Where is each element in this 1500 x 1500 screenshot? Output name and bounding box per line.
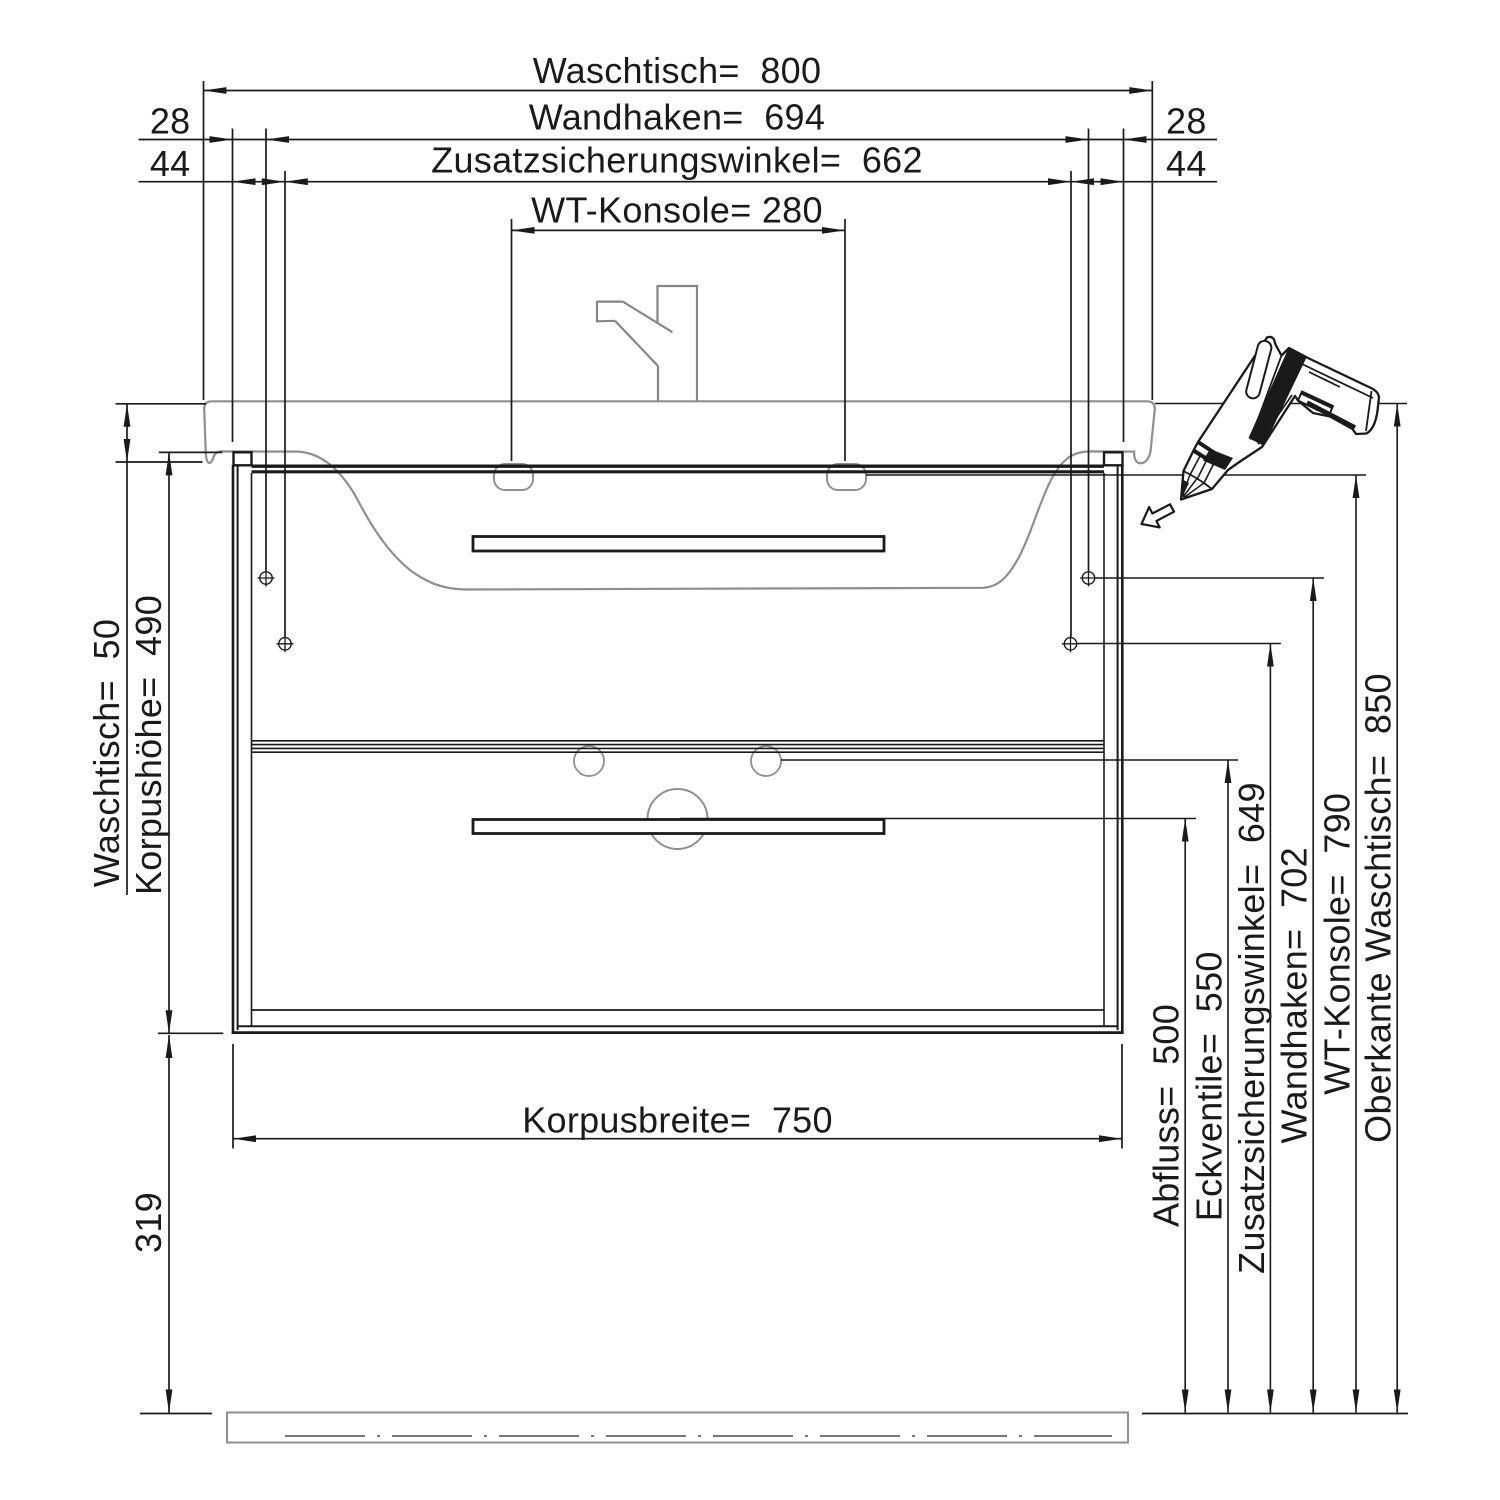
svg-text:Korpushöhe= 490: Korpushöhe= 490 [128, 595, 169, 895]
svg-text:Korpusbreite= 750: Korpusbreite= 750 [522, 1100, 833, 1141]
svg-text:Waschtisch= 800: Waschtisch= 800 [533, 50, 822, 91]
svg-text:Wandhaken= 702: Wandhaken= 702 [1274, 847, 1315, 1143]
svg-text:44: 44 [1166, 143, 1207, 184]
svg-text:Waschtisch= 50: Waschtisch= 50 [86, 619, 127, 887]
svg-text:Eckventile= 550: Eckventile= 550 [1189, 951, 1230, 1221]
svg-text:28: 28 [1166, 101, 1207, 142]
svg-text:WT-Konsole= 280: WT-Konsole= 280 [531, 190, 823, 231]
svg-text:Abfluss= 500: Abfluss= 500 [1146, 1004, 1187, 1227]
svg-text:Zusatzsicherungswinkel= 649: Zusatzsicherungswinkel= 649 [1231, 782, 1272, 1274]
svg-text:Zusatzsicherungswinkel= 662: Zusatzsicherungswinkel= 662 [431, 140, 923, 181]
svg-text:44: 44 [150, 143, 191, 184]
svg-text:319: 319 [128, 1192, 169, 1253]
svg-text:28: 28 [150, 101, 191, 142]
svg-text:Wandhaken= 694: Wandhaken= 694 [529, 97, 825, 138]
svg-text:WT-Konsole= 790: WT-Konsole= 790 [1317, 793, 1358, 1095]
svg-text:Oberkante Waschtisch= 850: Oberkante Waschtisch= 850 [1358, 673, 1399, 1143]
